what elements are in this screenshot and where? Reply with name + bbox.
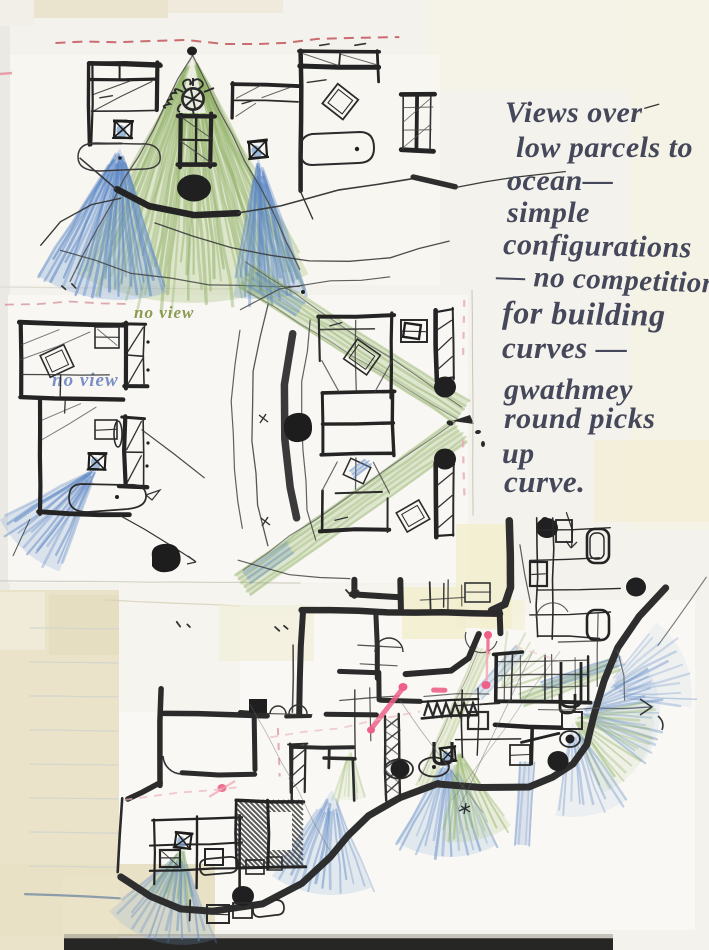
svg-text:low parcels to: low parcels to [516,131,693,164]
svg-text:configurations: configurations [503,228,692,264]
svg-text:round picks: round picks [504,402,655,435]
svg-text:no view: no view [52,370,119,391]
svg-text:simple: simple [506,196,590,229]
svg-text:no view: no view [134,303,194,322]
svg-text:Views over: Views over [505,96,643,129]
svg-text:curve.: curve. [504,464,585,499]
svg-text:for building: for building [502,294,666,333]
svg-text:curves —: curves — [502,330,627,365]
svg-text:ocean—: ocean— [507,164,613,197]
